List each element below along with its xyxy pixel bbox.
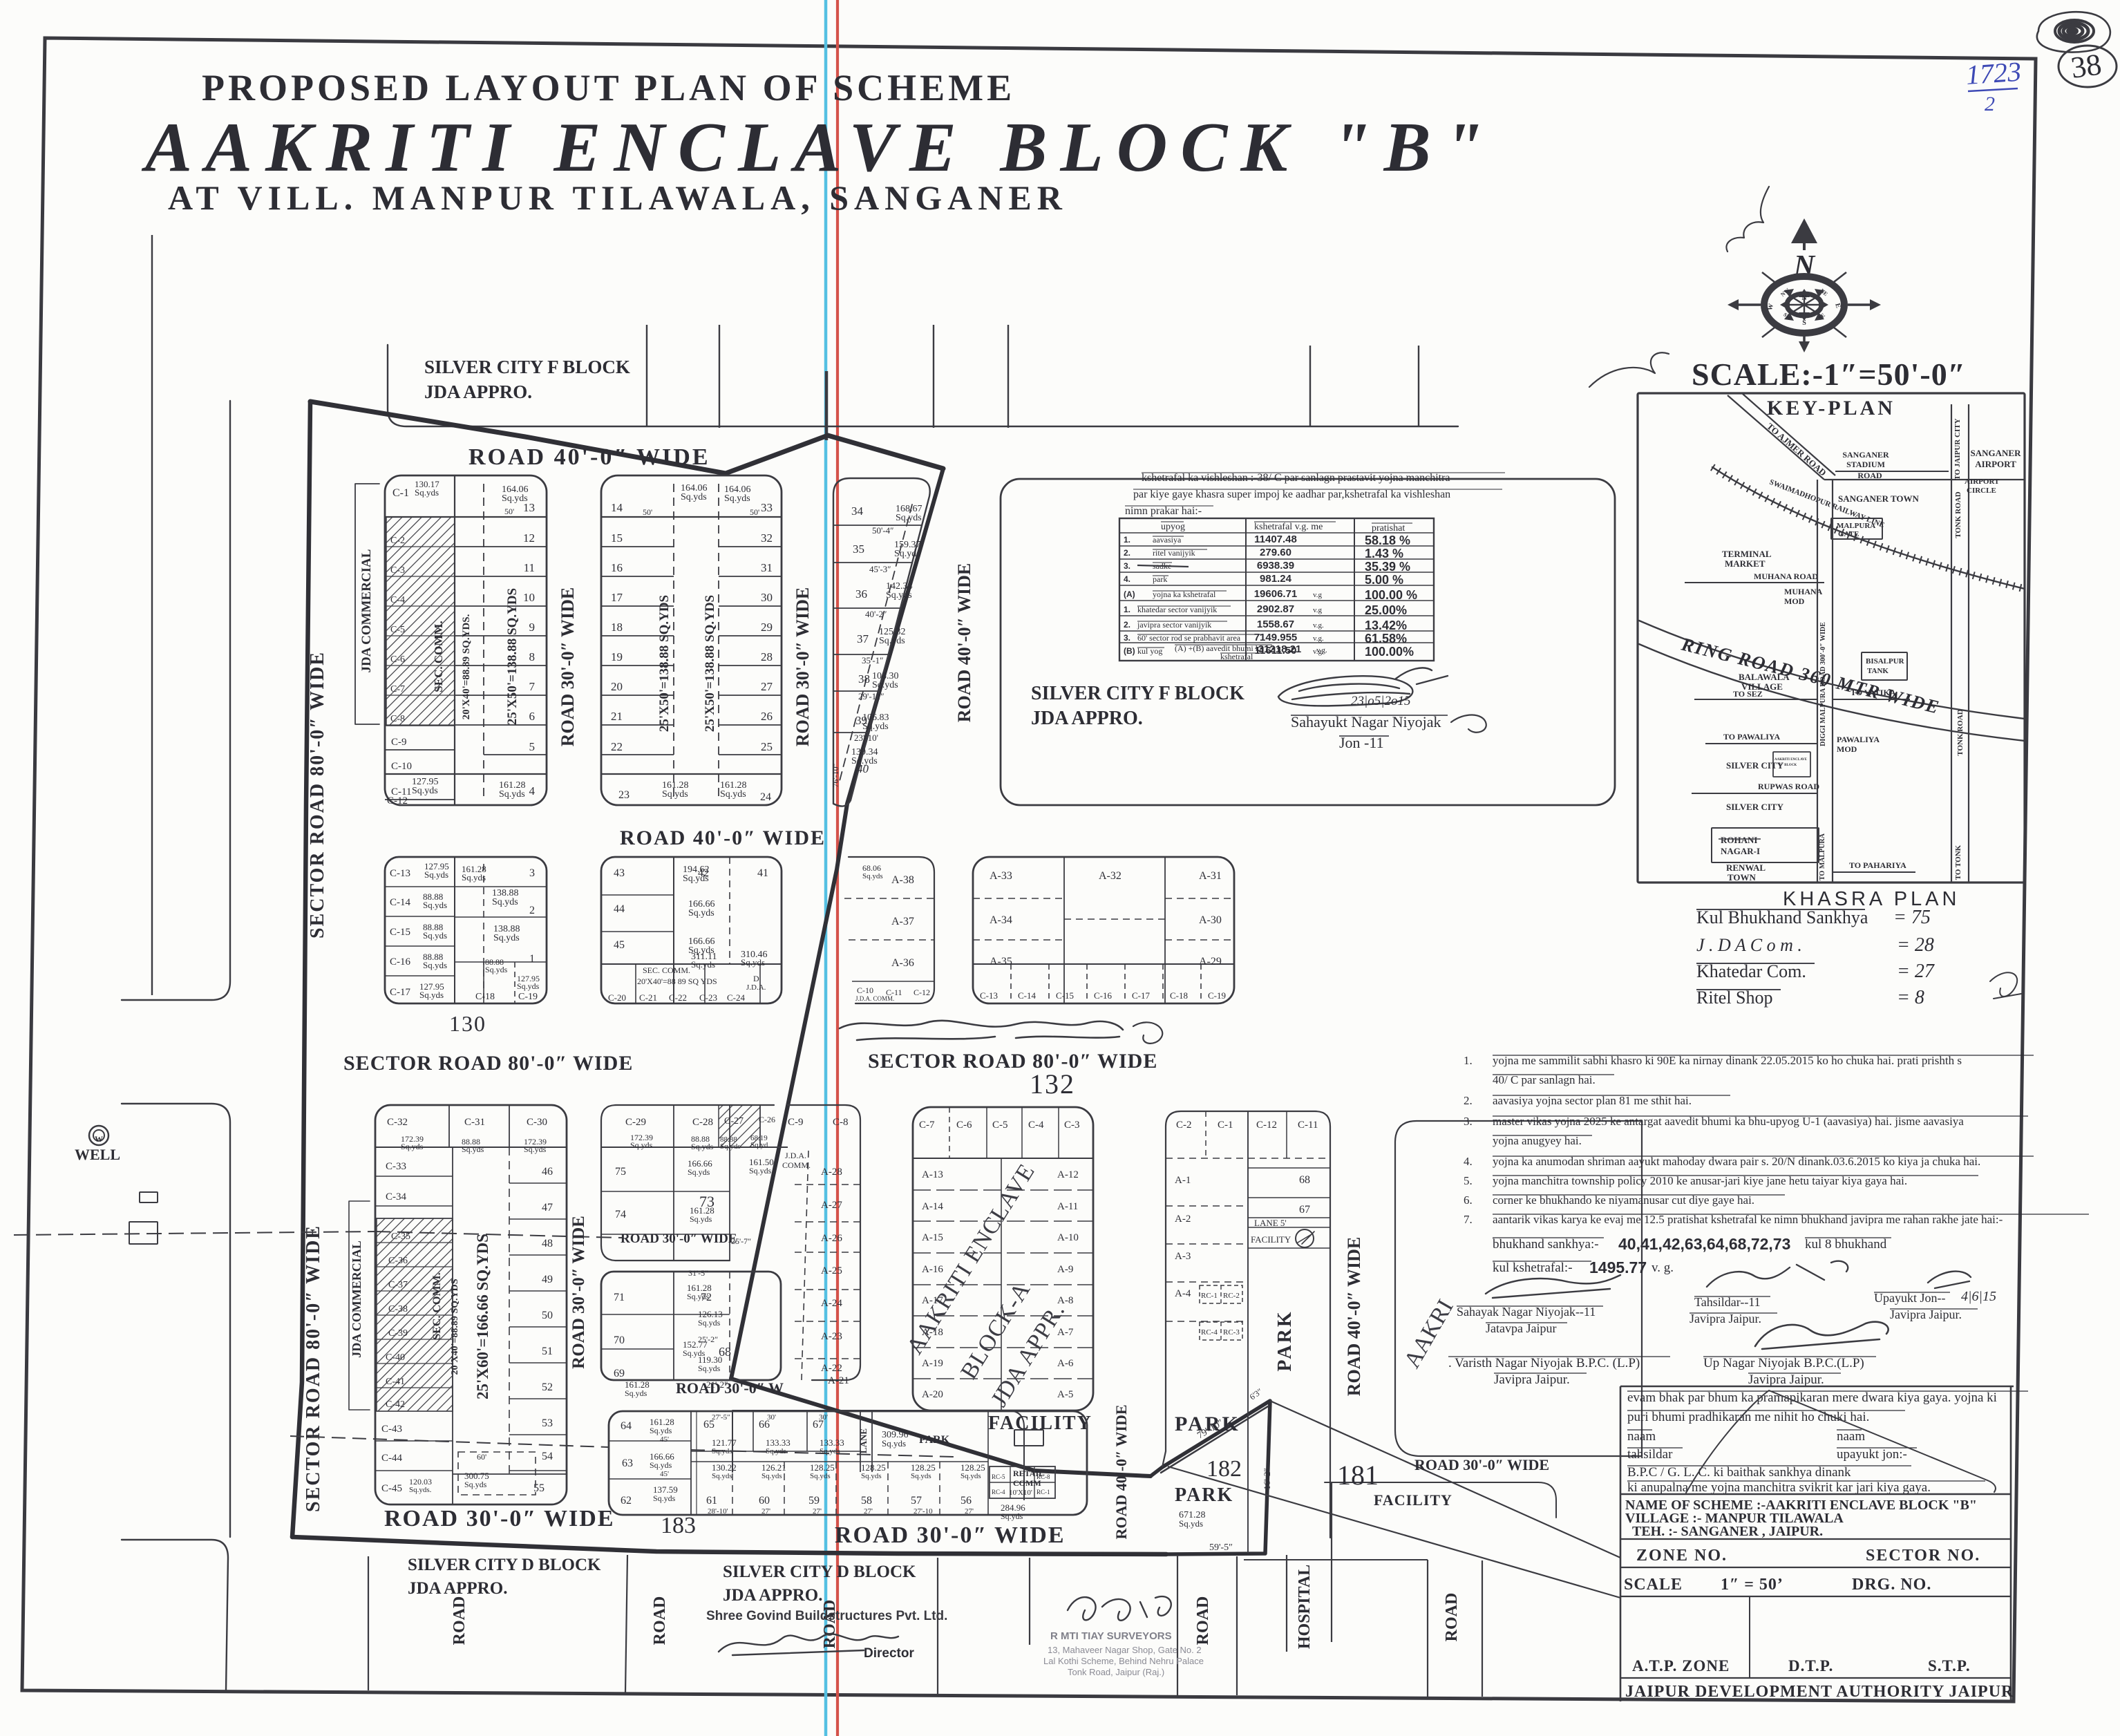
svg-text:SEC. COMM.: SEC. COMM. [643,965,690,975]
svg-text:SILVER CITY: SILVER CITY [1726,760,1784,771]
svg-text:A-19: A-19 [922,1358,943,1369]
svg-text:58.18 %: 58.18 % [1365,534,1410,547]
svg-text:RENWAL: RENWAL [1726,862,1766,873]
svg-text:A-20: A-20 [922,1389,943,1400]
svg-text:6.: 6. [1464,1193,1473,1207]
svg-text:2: 2 [529,905,535,916]
svg-text:SECTOR ROAD 80'-0″ WIDE: SECTOR ROAD 80'-0″ WIDE [868,1050,1157,1073]
svg-text:AAKRITI ENCLAVE BLOCK "B": AAKRITI ENCLAVE BLOCK "B" [141,108,1496,187]
svg-text:nimn prakar hai:-: nimn prakar hai:- [1125,505,1202,517]
svg-text:TONK ROAD: TONK ROAD [1954,491,1962,538]
svg-text:A-33: A-33 [990,870,1012,882]
svg-text:181: 181 [1337,1460,1379,1491]
svg-text:1723: 1723 [1965,56,2022,91]
svg-text:A-31: A-31 [1199,870,1222,882]
svg-text:A-10: A-10 [1057,1232,1079,1243]
svg-text:Lal Kothi Scheme, Behind Nehru: Lal Kothi Scheme, Behind Nehru Palace [1043,1656,1204,1666]
svg-text:11407.48: 11407.48 [1254,534,1297,545]
svg-text:RC-4: RC-4 [992,1489,1005,1496]
svg-text:A-2: A-2 [1175,1214,1191,1225]
svg-text:4.: 4. [1124,574,1130,584]
svg-text:C-14: C-14 [1018,990,1037,1001]
svg-text:C-4: C-4 [1028,1120,1044,1131]
svg-text:Sahayak Nagar Niyojak--11: Sahayak Nagar Niyojak--11 [1457,1305,1596,1319]
svg-text:3.: 3. [1464,1115,1473,1128]
svg-text:J.D.A.: J.D.A. [785,1151,806,1160]
svg-text:50': 50' [750,507,759,517]
svg-text:Sq.yds: Sq.yds [493,933,520,943]
svg-text:C-17: C-17 [1132,990,1151,1001]
svg-text:C-28: C-28 [692,1117,713,1128]
svg-text:RC-5: RC-5 [992,1473,1005,1480]
svg-text:C-39: C-39 [388,1328,408,1339]
svg-text:R MTI TIAY SURVEYORS: R MTI TIAY SURVEYORS [1050,1630,1172,1642]
svg-text:AAKRITI ENCLAVE: AAKRITI ENCLAVE [1774,758,1808,762]
svg-text:ROAD: ROAD [1443,1593,1461,1642]
svg-text:STADIUM: STADIUM [1846,460,1885,469]
svg-text:50'-4″: 50'-4″ [872,525,894,536]
svg-text:68.06: 68.06 [862,863,881,873]
svg-text:23: 23 [618,789,630,801]
svg-text:C-35: C-35 [391,1232,410,1242]
svg-text:Sq.yds: Sq.yds [810,1472,831,1480]
svg-text:C-13: C-13 [980,990,998,1001]
svg-text:74: 74 [615,1209,626,1220]
svg-text:Sq.yds: Sq.yds [662,789,688,800]
svg-text:Sq.yds: Sq.yds [1179,1518,1203,1529]
svg-text:C-27: C-27 [724,1116,744,1126]
svg-text:SECTOR ROAD 80'-0″ WIDE: SECTOR ROAD 80'-0″ WIDE [307,651,328,938]
svg-text:A-14: A-14 [922,1201,943,1212]
svg-text:v.g.: v.g. [1313,621,1324,630]
svg-text:Sq.yds: Sq.yds [862,721,889,732]
svg-text:Sq.yds: Sq.yds [688,1167,710,1177]
svg-text:3: 3 [529,867,535,879]
svg-text:ROAD: ROAD [1857,471,1882,480]
svg-text:1.: 1. [1124,535,1130,545]
svg-text:1: 1 [529,953,535,965]
svg-text:25'X50'=138.88 SQ.YDS: 25'X50'=138.88 SQ.YDS [657,595,672,732]
svg-text:RC-1: RC-1 [1201,1292,1218,1300]
svg-text:Sq.yds: Sq.yds [886,590,912,601]
svg-text:ROAD: ROAD [1194,1596,1212,1645]
svg-text:17: 17 [611,591,623,604]
svg-text:v.g: v.g [1313,591,1323,599]
svg-text:30': 30' [767,1413,776,1422]
svg-text:D: D [753,974,759,983]
svg-text:31'-5″: 31'-5″ [688,1268,708,1278]
svg-text:Sq.yds: Sq.yds [630,1140,653,1150]
svg-text:corner ke bhukhando ke niyaman: corner ke bhukhando ke niyamanusar cut d… [1493,1193,1754,1207]
svg-text:FACILITY: FACILITY [988,1413,1092,1434]
svg-text:Sq.yds: Sq.yds [464,1480,487,1489]
svg-text:20'X40'=88 89 SQ YDS: 20'X40'=88 89 SQ YDS [637,976,717,986]
svg-text:61.58%: 61.58% [1365,632,1407,645]
svg-text:A-37: A-37 [891,916,914,927]
svg-text:PROPOSED LAYOUT PLAN OF SCHEME: PROPOSED LAYOUT PLAN OF SCHEME [202,67,1015,108]
svg-text:C-42: C-42 [386,1399,405,1410]
svg-text:61: 61 [706,1495,717,1507]
svg-text:Javipra Jaipur.: Javipra Jaipur. [1494,1372,1570,1387]
svg-text:1.: 1. [1464,1054,1473,1067]
svg-text:kshetrafal ka vishleshan :-38/: kshetrafal ka vishleshan :-38/ C par san… [1142,472,1450,484]
svg-text:182: 182 [1206,1456,1242,1482]
svg-text:TO MALPURA: TO MALPURA [1819,833,1826,880]
svg-text:24: 24 [760,791,771,803]
svg-text:Shree Govind Buildstructures P: Shree Govind Buildstructures Pvt. Ltd. [706,1609,947,1623]
svg-text:Tonk Road, Jaipur (Raj.): Tonk Road, Jaipur (Raj.) [1068,1667,1164,1677]
svg-text:C-12: C-12 [1256,1120,1277,1131]
svg-text:27': 27' [813,1507,822,1516]
svg-text:ROAD 40'-0″ WIDE: ROAD 40'-0″ WIDE [469,444,710,470]
svg-text:1495.77: 1495.77 [1589,1258,1647,1276]
svg-text:50': 50' [643,507,652,517]
svg-text:SILVER CITY: SILVER CITY [1726,802,1784,812]
svg-text:Sq.yds: Sq.yds [423,960,447,970]
svg-text:C-19: C-19 [518,992,538,1002]
svg-text:6938.39: 6938.39 [1257,560,1294,572]
svg-text:50: 50 [542,1310,553,1321]
svg-text:19606.71: 19606.71 [1254,588,1298,600]
svg-text:tahsildar: tahsildar [1627,1447,1673,1462]
svg-text:27'-5″: 27'-5″ [712,1413,730,1422]
svg-text:JDA APPRO.: JDA APPRO. [424,381,532,402]
svg-text:C-15: C-15 [1056,990,1074,1001]
svg-text:133.33: 133.33 [820,1437,844,1448]
svg-text:Sq.yds: Sq.yds [691,959,715,970]
svg-text:Sq.yds: Sq.yds [650,1460,672,1470]
svg-text:25: 25 [761,740,773,753]
svg-text:A-15: A-15 [922,1232,943,1243]
svg-text:4.: 4. [1464,1155,1473,1168]
svg-text:60: 60 [759,1495,770,1507]
svg-text:100.00 %: 100.00 % [1365,588,1417,602]
svg-text:45': 45' [660,1435,669,1444]
svg-text:Sq.yds: Sq.yds [462,872,486,883]
svg-text:C-43: C-43 [381,1424,402,1435]
svg-text:N: N [1801,294,1807,302]
svg-text:45: 45 [614,939,625,951]
svg-text:Sq.yds: Sq.yds [882,1438,906,1449]
svg-text:130: 130 [449,1011,486,1036]
svg-text:2.: 2. [1124,548,1130,558]
svg-text:ki anupalna me yojna manchitra: ki anupalna me yojna manchitra svikrit k… [1627,1480,1931,1495]
svg-text:C-30: C-30 [527,1117,547,1128]
svg-text:28'-10': 28'-10' [708,1507,728,1516]
svg-text:Sq.yds: Sq.yds [517,981,540,991]
svg-text:v.g.: v.g. [1316,646,1327,654]
svg-text:18: 18 [611,621,623,634]
svg-text:3.: 3. [1124,633,1130,643]
svg-text:120.03: 120.03 [409,1477,432,1487]
svg-text:6: 6 [529,710,536,723]
svg-text:C-19: C-19 [1208,990,1226,1001]
svg-text:DRG. NO.: DRG. NO. [1852,1576,1931,1594]
svg-text:128.25: 128.25 [911,1462,936,1473]
svg-text:20'X40'=88.89 SQ.YDS: 20'X40'=88.89 SQ.YDS [450,1279,460,1375]
svg-text:Sq.yds: Sq.yds [424,869,448,880]
svg-text:64: 64 [621,1420,632,1432]
svg-text:PARK: PARK [1175,1484,1233,1506]
svg-text:Javipra Jaipur.: Javipra Jaipur. [1748,1372,1824,1387]
svg-text:SANGANER: SANGANER [1842,450,1889,460]
svg-text:C-2: C-2 [1176,1120,1192,1131]
svg-text:TEH. :- SANGANER , JAIPUR.: TEH. :- SANGANER , JAIPUR. [1632,1524,1823,1539]
svg-text:38: 38 [2069,47,2103,85]
svg-text:A.T.P. ZONE: A.T.P. ZONE [1632,1657,1730,1674]
svg-text:31218.21: 31218.21 [1258,643,1302,655]
svg-text:7: 7 [529,680,536,693]
svg-text:70: 70 [614,1334,625,1346]
svg-text:kul kshetrafal:-: kul kshetrafal:- [1493,1261,1573,1275]
svg-text:yojna manchitra township polic: yojna manchitra township policy 2010 ke … [1493,1174,1907,1187]
svg-text:Sq.yds: Sq.yds [896,513,922,523]
svg-text:C-13: C-13 [390,868,410,879]
svg-text:FACILITY: FACILITY [1374,1491,1452,1509]
svg-text:SILVER CITY D BLOCK: SILVER CITY D BLOCK [408,1556,601,1574]
svg-text:yojna me sammilit sabhi khasro: yojna me sammilit sabhi khasro ki 90E ka… [1493,1054,1962,1067]
svg-text:ROAD: ROAD [651,1596,669,1645]
svg-text:A-23: A-23 [821,1331,842,1342]
svg-text:45': 45' [660,1470,669,1478]
svg-text:56: 56 [960,1495,972,1507]
svg-text:59'-5″: 59'-5″ [1209,1542,1233,1553]
svg-text:A-4: A-4 [1175,1288,1191,1299]
svg-text:C-44: C-44 [381,1453,403,1464]
svg-text:23'-10': 23'-10' [854,733,878,743]
svg-text:40,41,42,63,64,68,72,73: 40,41,42,63,64,68,72,73 [1618,1235,1790,1253]
svg-text:23|o5|2o15: 23|o5|2o15 [1351,694,1410,708]
svg-text:68: 68 [719,1345,731,1359]
svg-text:SCALE:-1″=50'-0″: SCALE:-1″=50'-0″ [1692,357,1966,392]
svg-text:SECTOR ROAD 80'-0″ WIDE: SECTOR ROAD 80'-0″ WIDE [343,1052,633,1075]
svg-text:A-12: A-12 [1057,1169,1079,1180]
svg-text:41: 41 [757,867,768,879]
svg-text:7149.955: 7149.955 [1254,632,1298,643]
svg-text:128.25: 128.25 [810,1462,835,1473]
svg-text:= 75: = 75 [1893,907,1931,928]
svg-text:pratishat: pratishat [1372,523,1405,534]
svg-text:C-40: C-40 [386,1352,405,1363]
svg-text:46: 46 [542,1166,553,1178]
svg-text:C-32: C-32 [387,1117,408,1128]
svg-text:40/ C par sanlagn hai.: 40/ C par sanlagn hai. [1493,1073,1596,1086]
svg-text:25'X60'=166.66 SQ.YDS: 25'X60'=166.66 SQ.YDS [474,1234,491,1399]
svg-text:C-2: C-2 [390,536,405,546]
svg-text:Sq.yds: Sq.yds [401,1142,424,1151]
svg-text:Sq.yds: Sq.yds [861,1472,882,1480]
svg-text:45'-3″: 45'-3″ [869,564,891,574]
svg-text:130.22: 130.22 [712,1462,737,1473]
svg-text:J.D.A.: J.D.A. [746,983,766,992]
svg-text:C-38: C-38 [388,1304,408,1314]
svg-text:30: 30 [761,591,773,604]
svg-text:aavasiya yojna sector plan 81: aavasiya yojna sector plan 81 me sthit h… [1493,1094,1692,1107]
svg-text:128.25: 128.25 [861,1462,886,1473]
svg-text:yojna anugyey hai.: yojna anugyey hai. [1493,1134,1582,1147]
svg-text:C-14: C-14 [390,897,411,908]
svg-text:ROAD 30'-0″ WIDE: ROAD 30'-0″ WIDE [558,587,578,747]
svg-text:v.g: v.g [1313,606,1323,614]
svg-text:ROAD 30'-0″ WIDE: ROAD 30'-0″ WIDE [569,1216,588,1369]
svg-text:B.P.C / G. L. C. ki baithak sa: B.P.C / G. L. C. ki baithak sankhya dina… [1627,1465,1851,1480]
svg-text:68: 68 [1299,1174,1310,1186]
svg-text:TOWN: TOWN [1728,872,1757,883]
svg-text:Sq.yds: Sq.yds [492,897,518,907]
svg-text:D.T.P.: D.T.P. [1788,1657,1833,1674]
svg-text:DIGGI MALPURA ROAD 300'-0″ WID: DIGGI MALPURA ROAD 300'-0″ WIDE [1819,622,1827,746]
svg-text:Sq.yds: Sq.yds [650,1426,672,1435]
svg-text:= 27: = 27 [1897,961,1935,982]
svg-text:25'X50'=138.88 SQ.YDS: 25'X50'=138.88 SQ.YDS [703,595,717,732]
svg-text:27': 27' [864,1507,873,1516]
svg-text:33: 33 [761,501,773,514]
svg-text:A-16: A-16 [922,1264,943,1275]
svg-text:W: W [95,1134,103,1144]
svg-text:Sq.yds: Sq.yds [499,789,525,800]
svg-text:A-5: A-5 [1057,1389,1073,1400]
svg-text:C-37: C-37 [388,1280,408,1290]
svg-text:22: 22 [611,740,623,753]
svg-text:75: 75 [615,1166,626,1178]
svg-text:43: 43 [614,867,625,879]
svg-text:SEC. COMM.: SEC. COMM. [431,1272,443,1339]
svg-text:HOSPITAL: HOSPITAL [1296,1565,1314,1649]
svg-text:Sq.yds: Sq.yds [415,487,439,498]
svg-text:69: 69 [614,1368,625,1379]
svg-text:NAGAR-I: NAGAR-I [1721,846,1760,856]
svg-text:PARK: PARK [919,1434,950,1446]
svg-text:JAIPUR DEVELOPMENT AUTHORITY J: JAIPUR DEVELOPMENT AUTHORITY JAIPUR [1625,1683,2014,1701]
svg-text:LANE 5': LANE 5' [1254,1218,1287,1228]
svg-text:21: 21 [611,710,623,723]
svg-text:C-36: C-36 [388,1256,408,1266]
svg-text:A-11: A-11 [1057,1201,1078,1212]
svg-text:44: 44 [614,903,625,915]
svg-text:RC-3: RC-3 [1223,1328,1240,1337]
svg-text:Sq.yds: Sq.yds [698,1364,721,1373]
svg-text:bhukhand sankhya:-: bhukhand sankhya:- [1493,1237,1599,1252]
svg-text:50': 50' [504,507,514,516]
svg-text:Sq.yds: Sq.yds [625,1388,647,1398]
svg-text:C-16: C-16 [390,956,411,968]
svg-text:Khatedar Com.: Khatedar Com. [1696,961,1806,981]
svg-text:2.: 2. [1464,1094,1473,1107]
svg-text:SILVER CITY F BLOCK: SILVER CITY F BLOCK [424,357,630,377]
svg-text:71: 71 [614,1292,625,1303]
svg-text:Sq.yds: Sq.yds [872,680,898,690]
svg-text:SEC. COMM.: SEC. COMM. [432,621,445,692]
svg-text:TO JAIPUR CITY: TO JAIPUR CITY [1953,418,1962,480]
svg-text:A-22: A-22 [821,1363,842,1374]
svg-text:128.25: 128.25 [960,1462,985,1473]
svg-text:C-26: C-26 [759,1115,775,1124]
svg-text:100.00%: 100.00% [1365,645,1414,659]
svg-text:2.: 2. [1124,620,1130,630]
svg-text:upyog: upyog [1161,522,1185,532]
svg-text:A-8: A-8 [1057,1295,1073,1306]
svg-text:aantarik vikas karya ke evaj m: aantarik vikas karya ke evaj me 12.5 pra… [1493,1213,2003,1226]
svg-text:A-38: A-38 [891,874,914,886]
svg-text:29'-11″: 29'-11″ [858,691,884,701]
svg-text:C-6: C-6 [956,1120,972,1131]
svg-text:57: 57 [911,1495,922,1507]
svg-text:SCALE: SCALE [1624,1576,1683,1594]
svg-text:35: 35 [853,542,864,556]
svg-text:v. g.: v. g. [1651,1261,1674,1275]
svg-text:34: 34 [851,504,864,518]
svg-text:Sq.yds: Sq.yds [879,636,905,646]
svg-text:C-45: C-45 [381,1483,402,1494]
svg-text:C-7: C-7 [390,684,405,695]
svg-text:C-12: C-12 [387,795,408,806]
svg-text:Sq.yds: Sq.yds [688,908,714,918]
svg-text:1″ = 50’: 1″ = 50’ [1721,1576,1783,1594]
svg-text:3.: 3. [1124,561,1130,571]
svg-text:C-11: C-11 [886,988,902,997]
svg-text:S: S [1802,319,1806,327]
svg-text:76'-10″: 76'-10″ [831,763,840,787]
svg-text:Sq.yds: Sq.yds [419,990,444,1000]
svg-text:Sq.yds: Sq.yds [653,1493,676,1503]
svg-text:C-31: C-31 [464,1117,485,1128]
svg-text:. Varisth Nagar Niyojak B.P.C.: . Varisth Nagar Niyojak B.P.C. (L.P) [1448,1356,1640,1370]
svg-text:TO VATIKA: TO VATIKA [1851,688,1896,697]
svg-text:9: 9 [529,621,536,634]
svg-text:20'X40'=88.89 SQ.YDS.: 20'X40'=88.89 SQ.YDS. [461,614,472,719]
svg-text:ROAD 30'-0″ WIDE: ROAD 30'-0″ WIDE [621,1232,737,1246]
svg-text:Sq.yds: Sq.yds [766,1447,786,1455]
svg-text:C-17: C-17 [390,987,411,998]
svg-text:279.60: 279.60 [1260,547,1291,558]
svg-text:A-34: A-34 [990,914,1012,926]
svg-text:16'-2″: 16'-2″ [1262,1468,1272,1490]
svg-text:Sq.yds: Sq.yds [749,1166,772,1176]
svg-text:Javipra Jaipur.: Javipra Jaipur. [1690,1312,1761,1325]
svg-text:A-25: A-25 [821,1265,842,1276]
svg-text:Sq.yds: Sq.yds [412,786,438,796]
svg-text:MUHANA ROAD: MUHANA ROAD [1754,572,1818,581]
svg-text:C-8: C-8 [833,1117,849,1128]
svg-text:58: 58 [861,1495,872,1507]
svg-text:67: 67 [1299,1204,1310,1216]
svg-text:2: 2 [1985,93,1995,115]
svg-text:29: 29 [761,621,773,634]
svg-text:A-9: A-9 [1057,1264,1073,1275]
svg-text:Jatavpa Jaipur: Jatavpa Jaipur [1486,1321,1556,1335]
svg-text:SILVER CITY F BLOCK: SILVER CITY F BLOCK [1031,683,1244,704]
svg-text:5.00 %: 5.00 % [1365,573,1403,587]
svg-text:JDA APPRO.: JDA APPRO. [1031,708,1143,729]
svg-text:C-16: C-16 [1094,990,1113,1001]
svg-text:BISALPUR: BISALPUR [1866,657,1905,666]
svg-text:= 8: = 8 [1897,987,1924,1008]
svg-text:TO PAHARIYA: TO PAHARIYA [1849,860,1906,870]
svg-text:PARK: PARK [1274,1310,1296,1371]
svg-text:Kul Bhukhand Sankhya: Kul Bhukhand Sankhya [1696,907,1868,927]
svg-text:S.T.P.: S.T.P. [1928,1657,1971,1674]
svg-text:naam: naam [1837,1429,1865,1444]
svg-text:TO SEZ: TO SEZ [1733,689,1763,699]
svg-text:27: 27 [761,680,773,693]
svg-text:59: 59 [808,1495,820,1507]
svg-text:A-30: A-30 [1199,914,1222,926]
svg-text:Sq.yds.: Sq.yds. [409,1486,432,1494]
svg-text:SECTOR NO.: SECTOR NO. [1866,1547,1980,1565]
svg-text:C-1: C-1 [392,487,409,499]
svg-text:7.: 7. [1464,1213,1473,1226]
svg-text:1.43 %: 1.43 % [1365,547,1403,560]
